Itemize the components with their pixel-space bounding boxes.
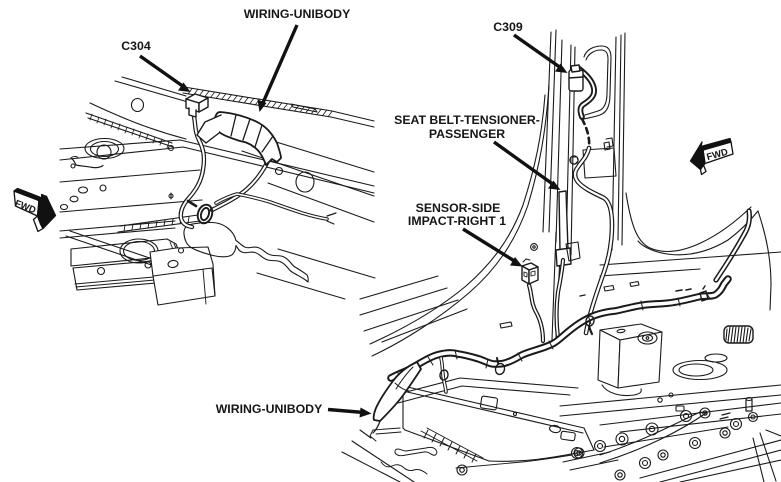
svg-text:IMPACT-RIGHT 1: IMPACT-RIGHT 1: [408, 214, 506, 228]
svg-text:WIRING-UNIBODY: WIRING-UNIBODY: [216, 402, 323, 416]
svg-text:C304: C304: [121, 39, 151, 53]
svg-text:WIRING-UNIBODY: WIRING-UNIBODY: [244, 7, 351, 21]
svg-text:SEAT BELT-TENSIONER-: SEAT BELT-TENSIONER-: [394, 113, 540, 127]
svg-text:PASSENGER: PASSENGER: [429, 127, 505, 141]
svg-text:C309: C309: [493, 20, 523, 34]
svg-text:SENSOR-SIDE: SENSOR-SIDE: [416, 201, 501, 215]
